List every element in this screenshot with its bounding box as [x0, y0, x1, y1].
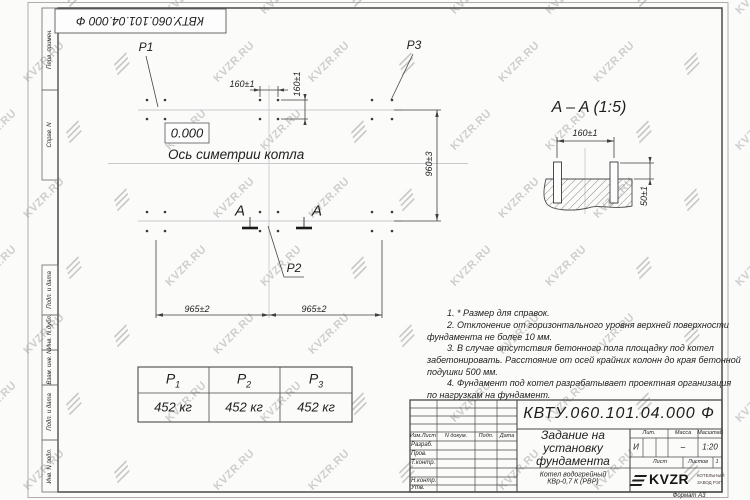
tb-scale-label: Масштаб: [697, 430, 723, 436]
tb-row-tkontr: Т.контр.: [411, 460, 435, 466]
margin-label-inv-podl: Инв. N подл.: [47, 448, 53, 483]
note-line: забетонировать. Расстояние от осей крайн…: [427, 355, 741, 365]
p3-subscript: 3: [318, 380, 323, 390]
note-line: 4. Фундамент под котел разрабатывает про…: [447, 378, 731, 388]
margin-label-podp-data-1: Подп. и дата: [47, 271, 53, 309]
format-label: Формат А3: [673, 493, 706, 499]
load-point-p2-label: P2: [287, 261, 302, 275]
tb-col-podp: Подп.: [479, 433, 494, 439]
margin-label-perv-primen: Перв. примен.: [47, 29, 53, 69]
tb-scale-value: 1:20: [702, 443, 718, 452]
margin-label-podp-data-2: Подп. и дата: [47, 393, 53, 431]
tb-col-data: Дата: [500, 433, 515, 439]
section-letter-left: A: [235, 203, 245, 220]
p2-subscript: 2: [246, 380, 251, 390]
margin-label-inv-dubl: Инв. N дубл.: [47, 315, 53, 350]
tb-mass-label: Масса: [675, 430, 691, 436]
tb-lit-label: Лит.: [643, 430, 656, 436]
tb-lit-value: И: [633, 443, 639, 452]
drawing-title-line1: Задание на: [541, 428, 605, 442]
section-title: A – A (1:5): [552, 99, 627, 117]
tb-mass-value: –: [681, 443, 685, 452]
note-line: 1. * Размер для справок.: [447, 308, 550, 318]
anchor-bolt-points: [146, 99, 394, 233]
note-line: 3. В случае отсутствия бетонного пола пл…: [447, 343, 714, 353]
load-table-value-p1: 452 кг: [154, 400, 192, 415]
kvzr-logo-text: KVZR: [649, 471, 689, 487]
dim-160-side: 160±1: [292, 72, 302, 97]
sheet-frame: [28, 3, 728, 498]
margin-label-sprav-n: Справ. N: [47, 122, 53, 147]
load-table-header-p3: P3: [309, 370, 323, 389]
tb-row-utv: Утв.: [411, 485, 425, 491]
drawing-sheet: KVZR.RUKVZR.RUKVZR.RUKVZR.RUKVZR.RUKVZR.…: [0, 0, 750, 500]
drawing-title-line2: установку: [543, 441, 603, 455]
product-name-line2: КВр-0,7 К (РВР): [547, 479, 598, 486]
leader-lines: [146, 54, 413, 277]
note-line: 2. Отклонение от горизонтального уровня …: [447, 320, 729, 330]
foundation-bolt-right: [610, 162, 618, 203]
load-table-value-p2: 452 кг: [225, 400, 263, 415]
note-line: фундамента не более 10 мм.: [427, 332, 552, 342]
p1-subscript: 1: [175, 380, 180, 390]
elevation-value: 0.000: [171, 126, 204, 141]
load-point-p3-label: P3: [407, 38, 422, 52]
dim-160-top: 160±1: [230, 79, 255, 89]
boiler-axis-label: Ось симетрии котла: [168, 147, 304, 162]
drawing-title-line3: фундамента: [536, 454, 610, 468]
margin-label-vzam-inv: Взам. инв. N: [47, 350, 53, 385]
tb-row-nkontr: Н.контр.: [411, 478, 436, 484]
drawing-linework: [0, 0, 750, 500]
load-table-value-p3: 452 кг: [297, 400, 335, 415]
dim-section-160: 160±1: [573, 128, 598, 138]
p2-symbol: P: [237, 370, 246, 386]
centerlines: [108, 85, 585, 318]
top-designation: КВТУ.060.101.04.000 Ф: [76, 14, 204, 28]
kvzr-logo-sub2: ЗАВОД РЭП: [697, 481, 722, 485]
dim-960: 960±3: [424, 152, 434, 177]
load-table-header-p1: P1: [166, 370, 180, 389]
tb-row-razrab: Разраб.: [411, 442, 433, 448]
load-table-header-p2: P2: [237, 370, 251, 389]
tb-col-n-dokum: N докум.: [445, 433, 467, 439]
tb-sheet-label: Лист: [653, 459, 667, 465]
tb-col-izm-list: Изм.Лист: [410, 433, 436, 439]
note-line: подушки 500 мм.: [427, 367, 498, 377]
p1-symbol: P: [166, 370, 175, 386]
note-line: по нагрузкам на фундамент.: [427, 390, 550, 400]
kvzr-logo-sub1: КОТЕЛЬНЫЙ: [697, 474, 725, 478]
p3-symbol: P: [309, 370, 318, 386]
foundation-bolt-left: [554, 162, 562, 203]
tb-row-prov: Пров.: [411, 451, 427, 457]
tb-sheets-label: Листов: [688, 459, 708, 465]
section-detail: [544, 162, 632, 210]
load-point-p1-label: P1: [139, 40, 154, 54]
title-block-designation: КВТУ.060.101.04.000 Ф: [523, 405, 715, 423]
dim-965-right: 965±2: [302, 304, 327, 314]
dim-section-50: 50±1: [639, 186, 649, 206]
dim-965-left: 965±2: [185, 304, 210, 314]
section-letter-right: A: [312, 203, 322, 220]
product-name-line1: Котел водогрейный: [540, 472, 607, 479]
tb-sheets-value: 1: [715, 459, 718, 465]
section-cut-marks: [242, 217, 312, 228]
